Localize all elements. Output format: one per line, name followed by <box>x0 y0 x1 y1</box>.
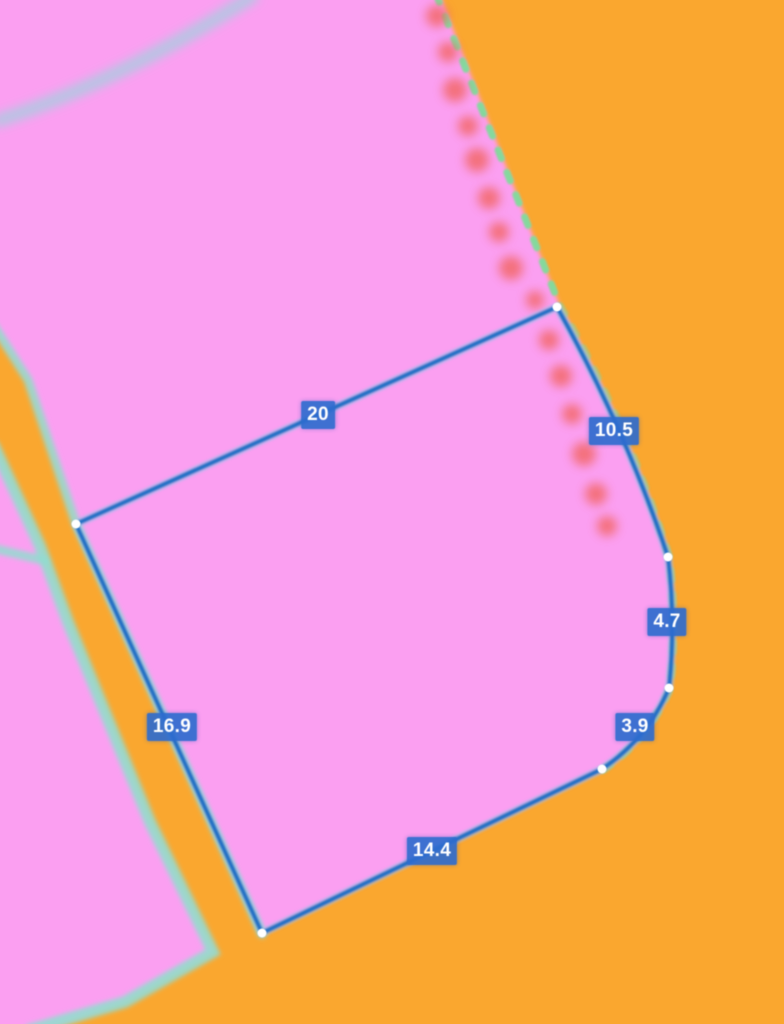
vegetation-blob <box>526 291 544 309</box>
vertex-handle[interactable] <box>72 520 81 529</box>
vegetation-blob <box>478 187 500 209</box>
vegetation-blob <box>426 5 448 27</box>
vertex-handle[interactable] <box>664 553 673 562</box>
vertex-handle[interactable] <box>258 929 267 938</box>
vegetation-blob <box>550 365 572 387</box>
map-view[interactable]: 20 10.5 4.7 3.9 14.4 16.9 <box>0 0 784 1024</box>
vegetation-blob <box>597 516 617 536</box>
vegetation-blob <box>489 222 509 242</box>
measurement-label-top: 20 <box>301 401 335 429</box>
vegetation-blob <box>539 330 559 350</box>
vegetation-blob <box>458 116 478 136</box>
vegetation-blob <box>499 256 523 280</box>
measurement-label-left: 16.9 <box>147 713 197 741</box>
measurement-label-bottom: 14.4 <box>407 837 457 865</box>
vertex-handle[interactable] <box>553 303 562 312</box>
vegetation-blob <box>443 78 467 102</box>
vegetation-blob <box>438 42 458 62</box>
vegetation-blob <box>562 404 582 424</box>
vegetation-blob <box>585 483 607 505</box>
measurement-label-right-lower: 3.9 <box>615 713 654 741</box>
vertex-handle[interactable] <box>665 684 674 693</box>
vegetation-blob <box>572 442 596 466</box>
vegetation-blob <box>465 148 489 172</box>
vertex-handle[interactable] <box>598 765 607 774</box>
map-canvas <box>0 0 784 1024</box>
measurement-label-right-upper: 10.5 <box>589 417 639 445</box>
measurement-label-right: 4.7 <box>647 608 686 636</box>
